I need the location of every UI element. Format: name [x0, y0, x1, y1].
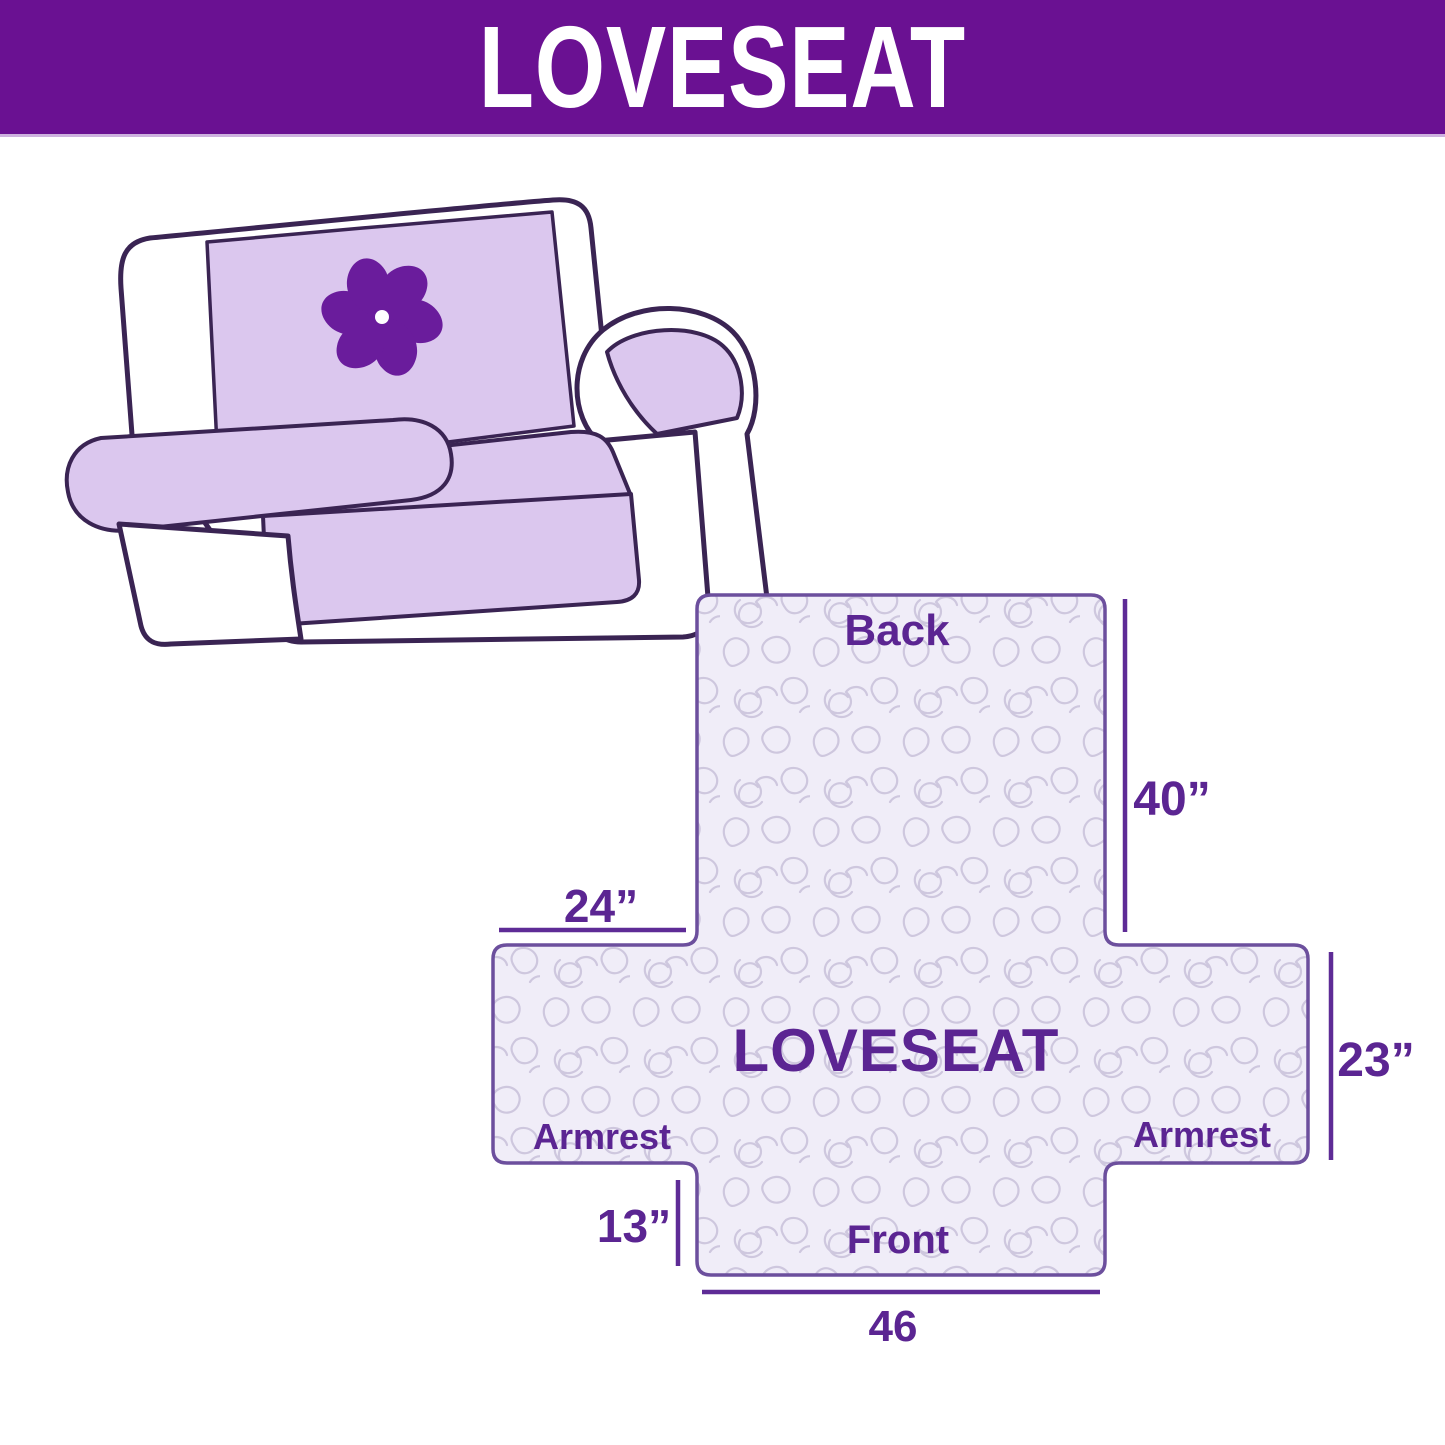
dimension-armrest-top: 24” — [564, 883, 638, 929]
label-front: Front — [847, 1220, 949, 1260]
label-armrest-right: Armrest — [1133, 1117, 1271, 1153]
dimension-front-skirt: 13” — [597, 1203, 671, 1249]
label-back: Back — [844, 609, 949, 653]
infographic-page: LOVESEAT — [0, 0, 1445, 1445]
dimension-front-width: 46 — [869, 1305, 918, 1349]
cover-diagram-shape — [493, 595, 1308, 1275]
cover-diagram-svg — [0, 0, 1445, 1445]
label-center-loveseat: LOVESEAT — [733, 1021, 1060, 1081]
dimension-back-height: 40” — [1133, 776, 1210, 824]
dimension-armrest-side: 23” — [1337, 1037, 1414, 1085]
label-armrest-left: Armrest — [533, 1119, 671, 1155]
